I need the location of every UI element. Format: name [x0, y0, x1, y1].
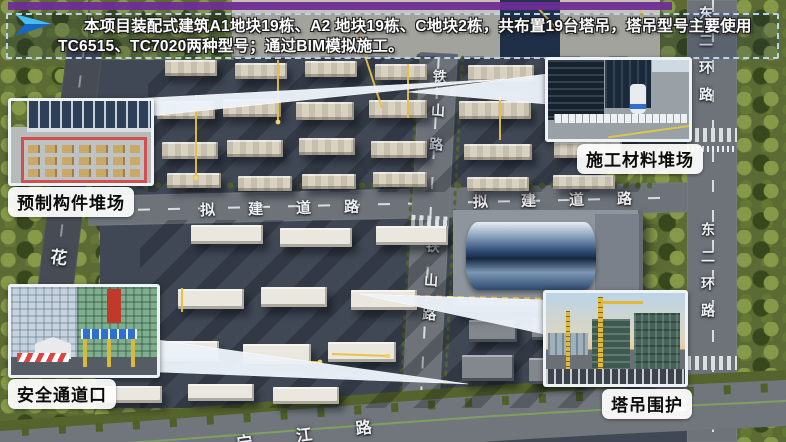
building-block — [369, 100, 427, 118]
tower-crane-enclosure-photo — [546, 293, 685, 384]
building-block — [238, 176, 292, 191]
safety-passage-thumbnail — [8, 284, 160, 378]
building-block — [468, 65, 534, 82]
paper-plane-arrow-icon — [14, 9, 54, 39]
building-block — [351, 290, 417, 310]
building-block — [223, 99, 281, 117]
building-block — [167, 173, 221, 188]
precast-yard-label: 预制构件堆场 — [8, 187, 134, 217]
building-block — [459, 101, 531, 119]
tower-crane-label: 塔吊围护 — [602, 389, 692, 419]
material-yard-thumbnail — [545, 57, 692, 142]
building-block — [191, 225, 263, 244]
building-block — [469, 320, 517, 342]
building-block — [299, 138, 355, 155]
safety-passage-label: 安全通道口 — [8, 379, 116, 409]
precast-yard-thumbnail — [8, 98, 154, 186]
building-block — [162, 142, 218, 159]
building-block — [376, 226, 448, 245]
building-block — [553, 175, 615, 189]
building-block — [261, 287, 327, 307]
building-block — [328, 342, 396, 362]
precast-component-storage-yard-photo — [11, 101, 151, 183]
banner-text-line2: TC6515、TC7020两种型号；通过BIM模拟施工。 — [58, 37, 771, 57]
building-block — [280, 228, 352, 247]
building-block — [273, 387, 339, 404]
building-block — [235, 63, 287, 79]
building-block — [375, 64, 427, 80]
barrel-roof — [466, 222, 596, 290]
bim-site-plan-slide: 花 宁江路 拟建道路 拟建道路 铁山路 铁山路 东二环路 东二环路 — [0, 0, 786, 442]
building-block — [373, 172, 427, 187]
building-block — [371, 141, 427, 158]
building-block — [296, 102, 354, 120]
safety-passage-entrance-photo — [11, 287, 157, 375]
building-block — [151, 341, 219, 361]
banner-text-line1: 本项目装配式建筑A1地块19栋、A2 地块19栋、C地块2栋，共布置19台塔吊，… — [58, 17, 771, 37]
building-block — [462, 355, 514, 381]
building-block — [243, 344, 311, 364]
material-yard-label: 施工材料堆场 — [577, 144, 703, 174]
building-block — [467, 177, 529, 191]
summary-banner: 本项目装配式建筑A1地块19栋、A2 地块19栋、C地块2栋，共布置19台塔吊，… — [6, 13, 779, 59]
building-block — [165, 60, 217, 76]
building-block — [157, 101, 215, 119]
building-block — [227, 140, 283, 157]
tower-crane-thumbnail — [543, 290, 688, 387]
building-block — [305, 61, 357, 77]
building-block — [178, 289, 244, 309]
purple-accent-bar — [8, 2, 672, 10]
building-block — [302, 174, 356, 189]
construction-material-storage-yard-photo — [548, 60, 689, 139]
building-block — [188, 384, 254, 401]
building-block — [464, 144, 532, 160]
